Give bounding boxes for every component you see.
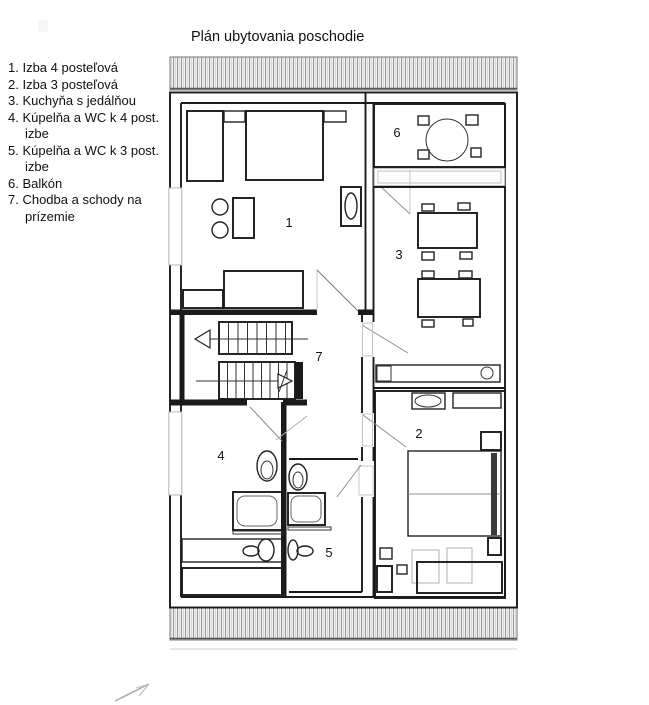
chair [422, 252, 434, 260]
pillow [447, 548, 472, 583]
bathtub-basin [237, 496, 277, 526]
room-label-4: 4 [217, 448, 224, 463]
room-label-6: 6 [393, 125, 400, 140]
room-7-stairs [195, 322, 308, 441]
chair [212, 199, 228, 215]
chair [422, 204, 434, 211]
dining-table [418, 279, 480, 317]
washbasin [258, 539, 274, 561]
room-3-kitchen [362, 187, 505, 382]
stool [471, 148, 481, 157]
stool [466, 115, 478, 125]
door-leaf [359, 466, 373, 495]
room-label-3: 3 [395, 247, 402, 262]
room-labels: 1 2 3 4 5 6 7 [217, 125, 422, 560]
room-1-bedroom [183, 111, 361, 311]
hatch-band-bottom [170, 608, 517, 649]
floor-plan-page: Plán ubytovania poschodie 1. Izba 4 post… [0, 0, 649, 705]
room-2-bedroom [363, 391, 506, 598]
stair-flight-upper [219, 322, 292, 354]
arrowhead-left [195, 330, 210, 348]
chair [459, 271, 472, 278]
single-bed [187, 111, 223, 181]
room-label-5: 5 [325, 545, 332, 560]
washbasin [297, 546, 313, 556]
toilet [257, 451, 277, 481]
shelf [288, 527, 331, 530]
stool [418, 116, 429, 125]
window-left-upper [169, 188, 182, 265]
door-swing [337, 465, 361, 497]
door-swing [250, 407, 282, 441]
headboard [491, 453, 497, 535]
chair [460, 252, 472, 259]
chair [458, 203, 470, 210]
round-table [426, 119, 468, 161]
pillow [224, 111, 245, 122]
chair [422, 320, 434, 327]
pillow [183, 290, 223, 308]
washbasin [345, 193, 357, 219]
toilet-bowl [293, 472, 303, 488]
door-swing [276, 416, 307, 440]
stool [380, 548, 392, 559]
door-swing [317, 270, 358, 311]
stool [418, 150, 429, 159]
stool [397, 565, 407, 574]
room-label-1: 1 [285, 215, 292, 230]
pillow [324, 111, 346, 122]
bathtub-basin [291, 496, 321, 522]
room-label-7: 7 [315, 349, 322, 364]
window-left-lower [169, 412, 182, 495]
floor-plan-drawing: 1 2 3 4 5 6 7 [0, 0, 649, 705]
door-swing [362, 325, 408, 353]
nightstand [481, 432, 501, 450]
toilet [289, 464, 307, 490]
room-label-2: 2 [415, 426, 422, 441]
nightstand [488, 538, 501, 555]
shelf [453, 393, 501, 408]
chair [463, 319, 473, 326]
chair [422, 271, 434, 278]
balcony-glass-door [374, 168, 505, 214]
chair [212, 222, 228, 238]
pillow [412, 550, 439, 583]
bench [182, 568, 282, 595]
cabinet [377, 566, 392, 592]
table [233, 198, 254, 238]
bed-horizontal [224, 271, 303, 308]
hatch-band-top [170, 57, 517, 90]
stove [377, 366, 391, 381]
toilet-bowl [261, 461, 273, 479]
basin [415, 395, 441, 407]
sink [481, 367, 493, 379]
room-4-bathroom [182, 451, 282, 595]
single-bed [417, 562, 502, 593]
washbasin-tap [243, 546, 259, 556]
door-swing [363, 415, 406, 447]
double-bed [246, 111, 323, 180]
shelf [233, 531, 282, 534]
dining-table [418, 213, 477, 248]
smudge-mark [38, 20, 48, 32]
counter [182, 539, 282, 562]
pencil-mark [115, 684, 149, 701]
